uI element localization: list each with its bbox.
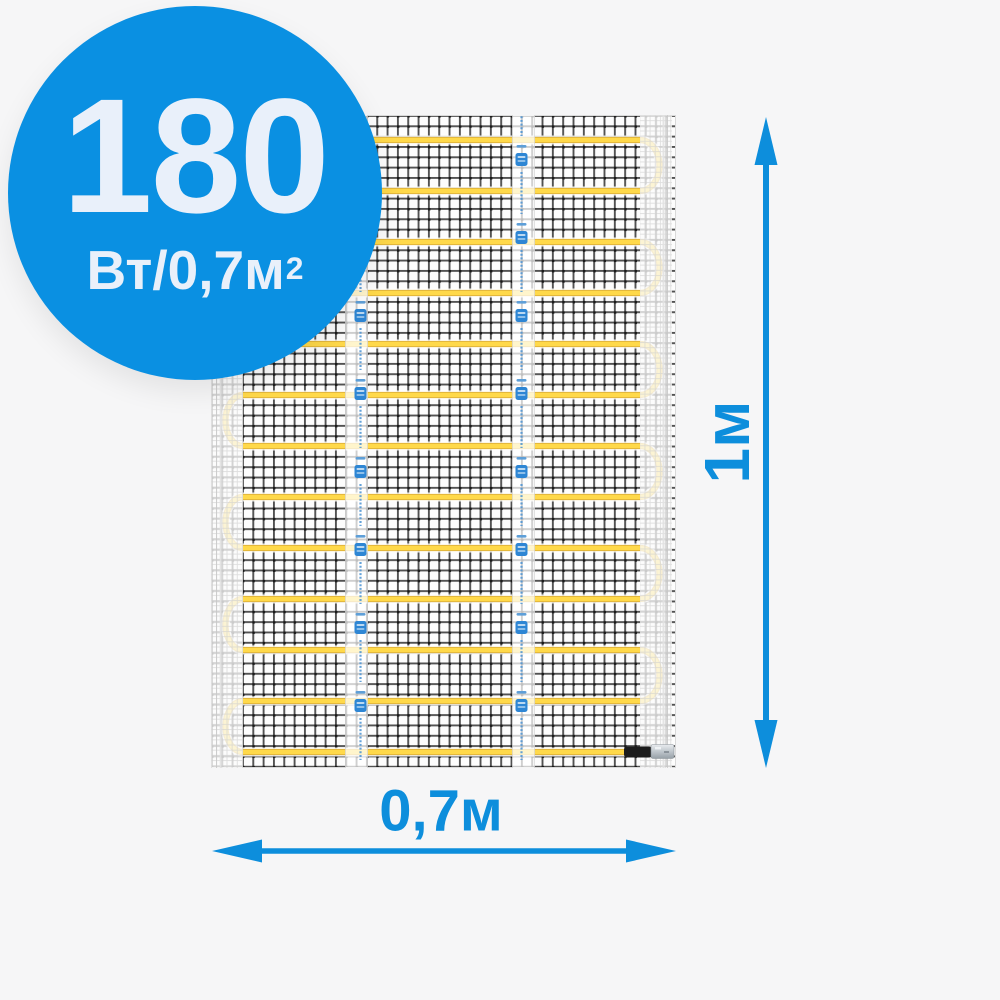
power-unit-superscript: 2 (286, 250, 304, 286)
height-dimension-label: 1м (690, 401, 764, 484)
left-arrow-icon (212, 840, 262, 863)
width-dimension-label: 0,7м (379, 778, 503, 845)
up-arrow-icon (755, 117, 778, 165)
power-badge: 180 Вт/0,7м2 (8, 6, 382, 380)
mat-right-edge-band (640, 115, 672, 768)
power-unit: Вт/0,7м2 (86, 238, 303, 302)
cable-end-connector (624, 745, 674, 759)
tape-logo-icon (512, 115, 535, 768)
right-arrow-icon (626, 840, 676, 863)
tape-strip-right (512, 115, 535, 768)
down-arrow-icon (755, 720, 778, 768)
power-value: 180 (62, 84, 328, 227)
